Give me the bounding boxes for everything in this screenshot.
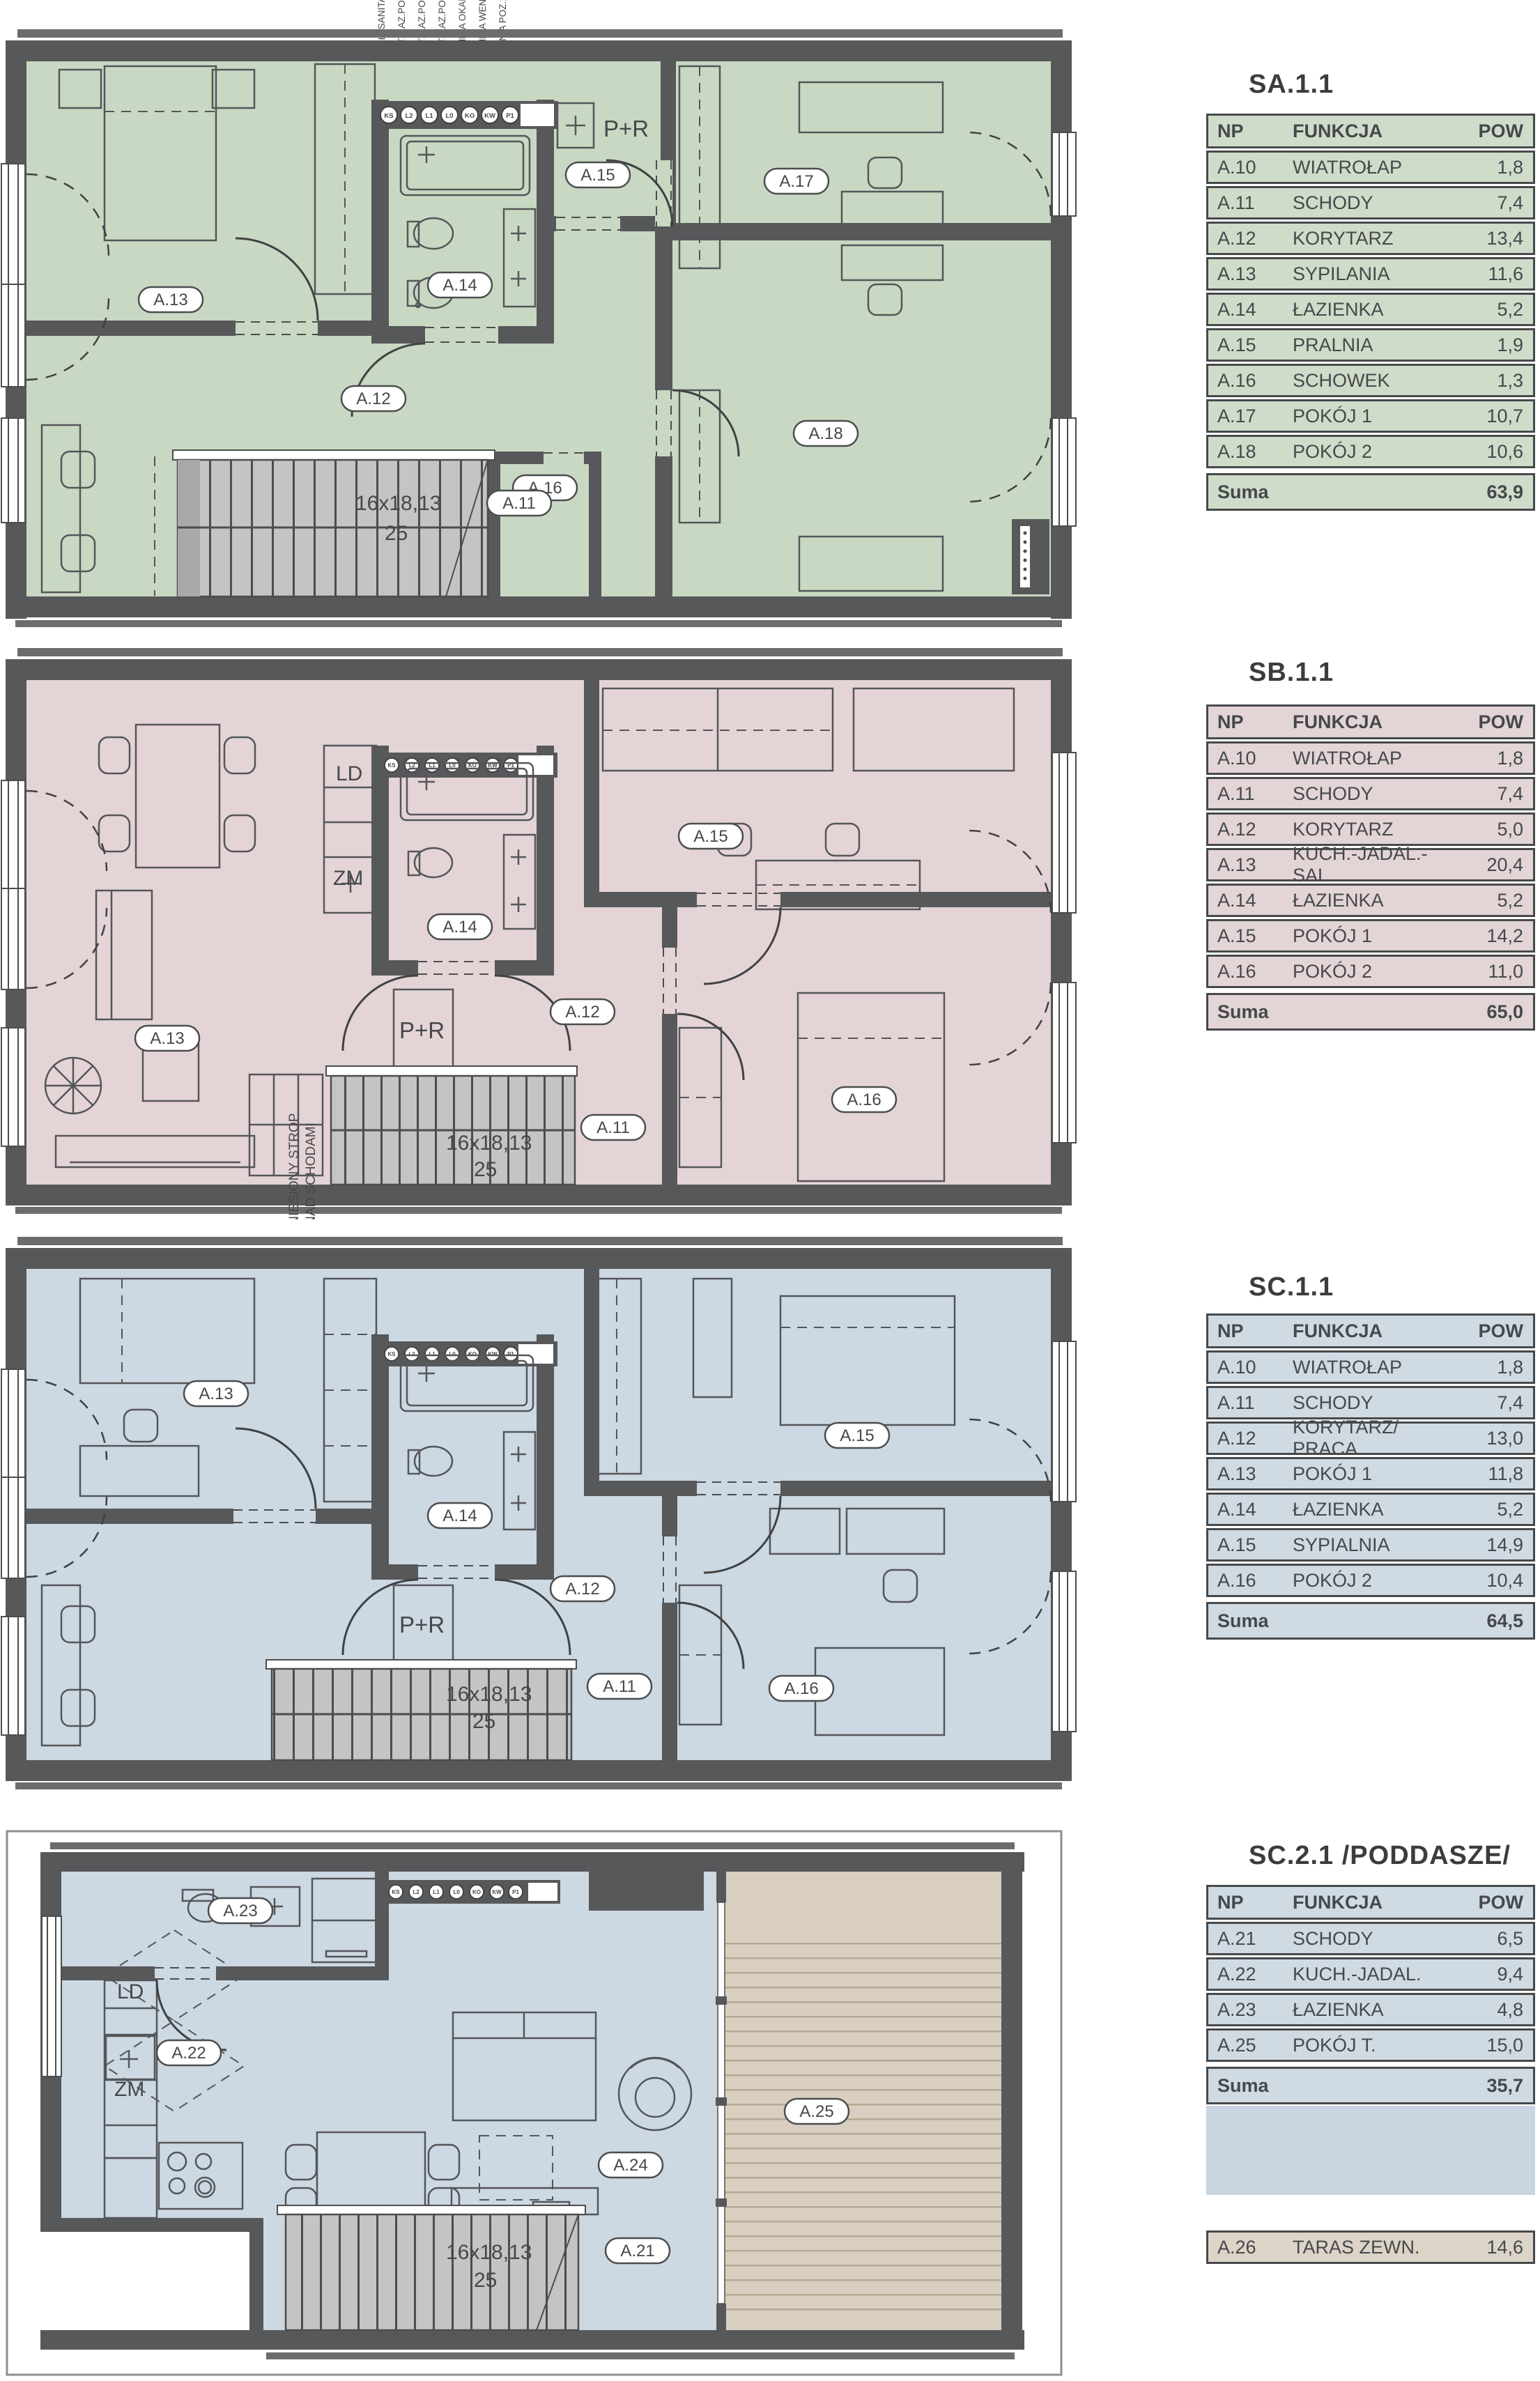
vent-code: KW (484, 112, 495, 120)
svg-text:A.13: A.13 (153, 291, 187, 309)
table-row: A.25POKÓJ T.15,0 (1206, 2028, 1535, 2062)
pr-label: P+R (399, 1017, 445, 1043)
table-cell: SCHODY (1293, 1392, 1438, 1414)
table-cell: FUNKCJA (1293, 121, 1438, 142)
table-row: A.26TARAS ZEWN.14,6 (1206, 2230, 1535, 2264)
table-suma-row: Suma63,9 (1206, 473, 1535, 511)
table-cell: A.14 (1208, 890, 1293, 911)
room-badge: A.15 (825, 1423, 889, 1448)
table-cell: POKÓJ T. (1293, 2035, 1438, 2056)
table-cell: SCHODY (1293, 1928, 1438, 1950)
area-table-taras: A.26TARAS ZEWN.14,6 (1206, 2228, 1535, 2264)
room-badge: A.11 (581, 1115, 645, 1140)
table-cell: WIATROŁAP (1293, 1357, 1438, 1378)
table-header-row: NPFUNKCJAPOW (1206, 114, 1535, 148)
table-cell: A.12 (1208, 1428, 1293, 1449)
table-cell: 1,8 (1438, 748, 1533, 769)
room-badge: A.22 (157, 2040, 221, 2065)
table-cell: 10,7 (1438, 406, 1533, 427)
table-cell: 35,7 (1438, 2075, 1533, 2097)
table-row: A.13POKÓJ 111,8 (1206, 1457, 1535, 1490)
table-cell: POW (1438, 711, 1533, 733)
table-cell: A.16 (1208, 1570, 1293, 1592)
table-row: A.16SCHOWEK1,3 (1206, 364, 1535, 397)
table-row: A.11SCHODY7,4 (1206, 1386, 1535, 1419)
room-badge: A.12 (550, 1576, 615, 1601)
table-row: A.10WIATROŁAP1,8 (1206, 151, 1535, 184)
room-badge: A.12 (550, 999, 615, 1024)
table-cell: POW (1438, 121, 1533, 142)
vent-code: KS (392, 1889, 400, 1895)
table-cell: 13,4 (1438, 228, 1533, 249)
room-badge: A.17 (764, 169, 829, 194)
room-badge: A.11 (587, 1674, 652, 1699)
vent-strip: KS L2 L1 L0 KO KW P1 (380, 1341, 557, 1366)
room-badge: A.13 (135, 1026, 199, 1051)
table-cell: 15,0 (1438, 2035, 1533, 2056)
vent-code: KS (387, 1351, 396, 1357)
svg-text:A.25: A.25 (799, 2102, 833, 2121)
table-cell: FUNKCJA (1293, 711, 1438, 733)
room-badge: A.16 (769, 1676, 833, 1701)
vent-strip: KS L2 L1 L0 KO KW P1 (378, 101, 558, 129)
table-row: A.16POKÓJ 211,0 (1206, 955, 1535, 988)
ceiling-note: NAD SCHODAMI (304, 1123, 318, 1219)
svg-text:A.16: A.16 (847, 1091, 881, 1109)
area-table-sc11: NPFUNKCJAPOWA.10WIATROŁAP1,8A.11SCHODY7,… (1206, 1311, 1535, 1640)
table-cell: SCHODY (1293, 192, 1438, 214)
table-cell: A.21 (1208, 1928, 1293, 1950)
table-cell: 64,5 (1438, 1610, 1533, 1632)
room-badge: A.12 (341, 386, 406, 411)
plan-title-sc21: SC.2.1 /PODDASZE/ (1249, 1841, 1511, 1871)
table-cell: 7,4 (1438, 192, 1533, 214)
table-cell: 1,8 (1438, 157, 1533, 178)
table-cell: A.23 (1208, 1999, 1293, 2021)
table-cell: POKÓJ 1 (1293, 925, 1438, 947)
table-cell: A.15 (1208, 334, 1293, 356)
table-cell: 5,0 (1438, 819, 1533, 840)
plan-title-sc11: SC.1.1 (1249, 1272, 1334, 1302)
table-cell: 9,4 (1438, 1964, 1533, 1985)
table-row: A.11SCHODY7,4 (1206, 186, 1535, 219)
table-cell: A.18 (1208, 441, 1293, 463)
table-cell: NP (1208, 711, 1293, 733)
vent-code: L2 (413, 1889, 419, 1895)
empty-color-block (1206, 2106, 1535, 2195)
plan-title-sa11: SA.1.1 (1249, 70, 1334, 100)
table-cell: 11,6 (1438, 263, 1533, 285)
floor-plan-sc-2-1: KS L2 L1 L0 KO KW P1 LD ZM (0, 1826, 1087, 2381)
table-row: A.12KORYTARZ5,0 (1206, 812, 1535, 846)
table-cell: 20,4 (1438, 854, 1533, 876)
svg-text:A.14: A.14 (442, 276, 477, 295)
table-row: A.21SCHODY6,5 (1206, 1922, 1535, 1955)
table-cell: A.11 (1208, 1392, 1293, 1414)
stair-note: 25 (472, 1710, 495, 1733)
table-suma-row: Suma35,7 (1206, 2067, 1535, 2104)
table-row: A.10WIATROŁAP1,8 (1206, 741, 1535, 775)
table-cell: WIATROŁAP (1293, 157, 1438, 178)
table-cell: 7,4 (1438, 783, 1533, 805)
windows (42, 1916, 61, 2076)
svg-text:A.14: A.14 (442, 1507, 477, 1525)
table-row: A.13SYPILANIA11,6 (1206, 257, 1535, 291)
table-row: A.11SCHODY7,4 (1206, 777, 1535, 810)
table-row: A.12KORYTARZ/ PRACA13,0 (1206, 1421, 1535, 1455)
floor-plan-sa-1-1: KANAŁ. SANITAR. WENT. ŁAZ.POZ.2 WENT. ŁA… (0, 0, 1087, 631)
zm-label: ZM (333, 867, 363, 890)
vent-code: L0 (453, 1889, 460, 1895)
svg-text:A.12: A.12 (565, 1580, 599, 1598)
svg-text:A.11: A.11 (596, 1118, 630, 1137)
table-cell: ŁAZIENKA (1293, 299, 1438, 321)
table-header-row: NPFUNKCJAPOW (1206, 704, 1535, 739)
svg-text:A.15: A.15 (840, 1426, 874, 1445)
pr-label: P+R (399, 1612, 445, 1638)
svg-text:A.22: A.22 (171, 2044, 206, 2063)
table-cell: TARAS ZEWN. (1293, 2237, 1438, 2258)
table-cell: POKÓJ 1 (1293, 406, 1438, 427)
table-cell: WIATROŁAP (1293, 748, 1438, 769)
table-row: A.22KUCH.-JADAL.9,4 (1206, 1957, 1535, 1991)
table-cell: POW (1438, 1892, 1533, 1913)
room-badge: A.15 (679, 824, 743, 849)
table-cell: POW (1438, 1320, 1533, 1342)
zm-label: ZM (114, 2078, 144, 2101)
table-cell: ŁAZIENKA (1293, 890, 1438, 911)
stair-note: 16x18,13 (446, 1683, 532, 1706)
svg-text:A.15: A.15 (693, 827, 727, 846)
svg-text:A.13: A.13 (150, 1029, 184, 1048)
room-badge: A.25 (785, 2099, 849, 2124)
door-openings (155, 1966, 216, 1980)
table-cell: A.14 (1208, 1499, 1293, 1520)
terrace-glazing (716, 1902, 727, 2304)
table-cell: A.10 (1208, 1357, 1293, 1378)
table-cell: 5,2 (1438, 1499, 1533, 1520)
table-cell: Suma (1208, 1610, 1293, 1632)
table-cell: 14,6 (1438, 2237, 1533, 2258)
table-cell: SCHODY (1293, 783, 1438, 805)
table-row: A.15SYPIALNIA14,9 (1206, 1528, 1535, 1562)
table-cell: Suma (1208, 1001, 1293, 1023)
table-cell: 65,0 (1438, 1001, 1533, 1023)
table-row: A.18POKÓJ 210,6 (1206, 435, 1535, 468)
vent-code: KO (468, 1351, 477, 1357)
table-row: A.14ŁAZIENKA5,2 (1206, 884, 1535, 917)
svg-text:A.12: A.12 (565, 1003, 599, 1022)
stair-note: 16x18,13 (446, 2241, 532, 2264)
table-cell: SYPILANIA (1293, 263, 1438, 285)
table-cell: 11,8 (1438, 1463, 1533, 1485)
table-cell: KORYTARZ/ PRACA (1293, 1417, 1438, 1460)
vent-code: L2 (408, 1351, 415, 1357)
table-suma-row: Suma64,5 (1206, 1602, 1535, 1640)
table-cell: 1,3 (1438, 370, 1533, 392)
table-cell: A.15 (1208, 1534, 1293, 1556)
room-badge: A.13 (184, 1381, 248, 1406)
table-cell: NP (1208, 1320, 1293, 1342)
vent-strip: KS L2 L1 L0 KO KW P1 (385, 1880, 560, 1904)
table-cell: ŁAZIENKA (1293, 1999, 1438, 2021)
table-cell: 6,5 (1438, 1928, 1533, 1950)
table-row: A.16POKÓJ 210,4 (1206, 1564, 1535, 1597)
svg-text:A.14: A.14 (442, 918, 477, 937)
ld-label: LD (117, 1980, 144, 2003)
table-cell: 10,4 (1438, 1570, 1533, 1592)
svg-text:A.16: A.16 (784, 1679, 818, 1698)
plan-title-sb11: SB.1.1 (1249, 658, 1334, 688)
table-cell: 14,2 (1438, 925, 1533, 947)
table-cell: A.15 (1208, 925, 1293, 947)
table-row: A.17POKÓJ 110,7 (1206, 399, 1535, 433)
table-cell: POKÓJ 2 (1293, 441, 1438, 463)
room-badge: A.24 (599, 2152, 663, 2178)
table-cell: KUCH.-JADAL. (1293, 1964, 1438, 1985)
svg-text:A.23: A.23 (223, 1902, 257, 1920)
table-cell: NP (1208, 1892, 1293, 1913)
table-cell: POKÓJ 1 (1293, 1463, 1438, 1485)
svg-text:A.12: A.12 (356, 390, 390, 408)
table-row: A.23ŁAZIENKA4,8 (1206, 1993, 1535, 2026)
svg-text:A.11: A.11 (502, 494, 536, 513)
svg-text:A.21: A.21 (620, 2242, 654, 2260)
room-badge: A.21 (606, 2238, 670, 2263)
svg-text:A.15: A.15 (580, 166, 615, 185)
table-cell: 13,0 (1438, 1428, 1533, 1449)
room-badge: A.15 (566, 162, 630, 187)
room-badge: A.18 (794, 421, 858, 446)
vent-code: L1 (429, 1351, 436, 1357)
table-cell: A.26 (1208, 2237, 1293, 2258)
room-badge: A.16 (832, 1087, 896, 1112)
svg-text:A.24: A.24 (613, 2156, 647, 2175)
table-cell: POKÓJ 2 (1293, 961, 1438, 983)
table-cell: KORYTARZ (1293, 819, 1438, 840)
table-cell: 7,4 (1438, 1392, 1533, 1414)
table-cell: A.14 (1208, 299, 1293, 321)
vent-code: L1 (433, 1889, 440, 1895)
svg-text:A.13: A.13 (199, 1385, 233, 1403)
room-badge: A.13 (139, 287, 203, 312)
table-row: A.14ŁAZIENKA5,2 (1206, 1493, 1535, 1526)
area-table-sb11: NPFUNKCJAPOWA.10WIATROŁAP1,8A.11SCHODY7,… (1206, 702, 1535, 1031)
table-cell: 5,2 (1438, 299, 1533, 321)
table-header-row: NPFUNKCJAPOW (1206, 1885, 1535, 1920)
vent-code: KO (472, 1889, 481, 1895)
svg-text:A.18: A.18 (808, 424, 842, 443)
stair-note: 25 (385, 522, 408, 545)
room-badge: A.14 (428, 1503, 492, 1528)
vent-code: L2 (405, 112, 413, 120)
table-cell: 4,8 (1438, 1999, 1533, 2021)
stairs: 16x18,13 25 (155, 450, 495, 596)
table-cell: FUNKCJA (1293, 1320, 1438, 1342)
table-cell: A.11 (1208, 783, 1293, 805)
table-cell: 10,6 (1438, 441, 1533, 463)
table-cell: PRALNIA (1293, 334, 1438, 356)
table-header-row: NPFUNKCJAPOW (1206, 1313, 1535, 1348)
vent-code: P1 (512, 1889, 519, 1895)
table-cell: FUNKCJA (1293, 1892, 1438, 1913)
stair-note: 16x18,13 (446, 1132, 532, 1155)
table-cell: A.16 (1208, 370, 1293, 392)
table-cell: 11,0 (1438, 961, 1533, 983)
vent-code: P1 (506, 112, 514, 120)
table-cell: A.12 (1208, 228, 1293, 249)
table-cell: A.13 (1208, 1463, 1293, 1485)
table-cell: POKÓJ 2 (1293, 1570, 1438, 1592)
table-cell: A.17 (1208, 406, 1293, 427)
stair-note: 25 (474, 2269, 497, 2292)
table-cell: A.25 (1208, 2035, 1293, 2056)
room-badge: A.23 (208, 1898, 272, 1923)
table-cell: A.12 (1208, 819, 1293, 840)
vent-code: P1 (507, 1351, 514, 1357)
vent-code: L0 (445, 112, 453, 120)
vent-code: KW (488, 1351, 498, 1357)
table-cell: A.13 (1208, 263, 1293, 285)
table-cell: A.13 (1208, 854, 1293, 876)
vent-code: KO (465, 112, 475, 120)
table-cell: A.10 (1208, 157, 1293, 178)
floor-plan-sb-1-1: KS L2 L1 L0 KO KW P1 LD ZM P+R (0, 648, 1087, 1219)
ld-label: LD (336, 762, 362, 785)
table-cell: KORYTARZ (1293, 228, 1438, 249)
stairs: 16x18,13 25 (266, 1660, 576, 1760)
table-cell: Suma (1208, 2075, 1293, 2097)
room-badge: A.11 (487, 491, 551, 516)
room-badge: A.14 (428, 272, 492, 298)
table-cell: 5,2 (1438, 890, 1533, 911)
vent-code: KW (492, 1889, 502, 1895)
table-cell: KUCH.-JADAL.-SAL. (1293, 843, 1438, 886)
table-cell: SCHOWEK (1293, 370, 1438, 392)
table-suma-row: Suma65,0 (1206, 993, 1535, 1031)
table-cell: A.10 (1208, 748, 1293, 769)
floor-plan-sc-1-1: KS L2 L1 L0 KO KW P1 P+R (0, 1237, 1087, 1794)
svg-text:A.17: A.17 (779, 172, 813, 191)
table-cell: 14,9 (1438, 1534, 1533, 1556)
table-cell: Suma (1208, 481, 1293, 503)
table-row: A.14ŁAZIENKA5,2 (1206, 293, 1535, 326)
room-badge: A.14 (428, 914, 492, 939)
area-table-sa11: NPFUNKCJAPOWA.10WIATROŁAP1,8A.11SCHODY7,… (1206, 111, 1535, 511)
stair-note: 25 (474, 1158, 497, 1181)
table-row: A.12KORYTARZ13,4 (1206, 222, 1535, 255)
vent-code: KS (387, 762, 396, 769)
table-cell: NP (1208, 121, 1293, 142)
area-table-sc21: NPFUNKCJAPOWA.21SCHODY6,5A.22KUCH.-JADAL… (1206, 1883, 1535, 2104)
vent-code: L1 (425, 112, 433, 120)
table-cell: 1,8 (1438, 1357, 1533, 1378)
vent-code: KS (384, 112, 393, 120)
table-cell: SYPIALNIA (1293, 1534, 1438, 1556)
stair-note: 16x18,13 (355, 492, 441, 515)
table-cell: 1,9 (1438, 334, 1533, 356)
table-cell: A.11 (1208, 192, 1293, 214)
table-row: A.13KUCH.-JADAL.-SAL.20,4 (1206, 848, 1535, 881)
svg-text:A.11: A.11 (603, 1677, 636, 1696)
ceiling-note: UNIESIONY STROP (287, 1114, 302, 1219)
table-cell: A.22 (1208, 1964, 1293, 1985)
table-cell: ŁAZIENKA (1293, 1499, 1438, 1520)
table-cell: 63,9 (1438, 481, 1533, 503)
table-cell: A.16 (1208, 961, 1293, 983)
table-row: A.10WIATROŁAP1,8 (1206, 1350, 1535, 1384)
stairs: 16x18,13 25 (277, 2205, 585, 2330)
vent-code: L0 (449, 1351, 456, 1357)
table-row: A.15PRALNIA1,9 (1206, 328, 1535, 362)
pr-label: P+R (603, 116, 649, 141)
table-row: A.15POKÓJ 114,2 (1206, 919, 1535, 953)
